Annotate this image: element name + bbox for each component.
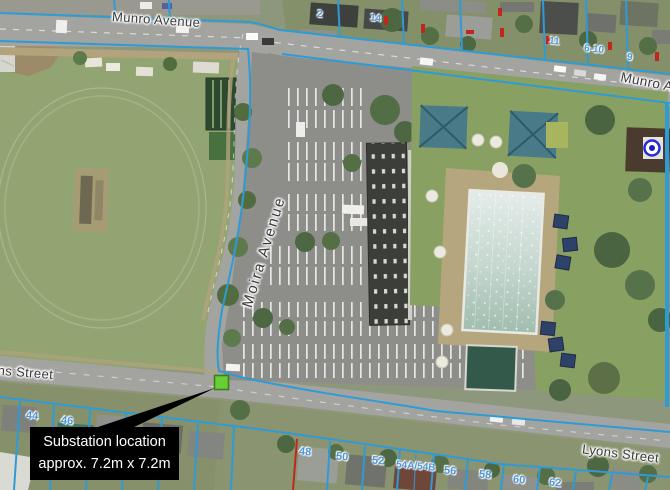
parcel-number-52: 52 — [372, 454, 385, 467]
parcel-number-11: 11 — [548, 35, 560, 47]
parcel-number-2: 2 — [316, 9, 323, 21]
park-shed — [193, 62, 219, 74]
substation-callout-line2: approx. 7.2m x 7.2m — [38, 454, 170, 476]
substation-marker — [215, 376, 229, 390]
parcel-number-62: 62 — [549, 476, 562, 489]
toddler-pool — [465, 345, 517, 391]
parcel-number-60: 60 — [513, 473, 526, 486]
cricket-pitch — [73, 167, 109, 232]
substation-callout: Substation location approx. 7.2m x 7.2m — [30, 427, 179, 480]
parcel-number-44: 44 — [26, 409, 39, 422]
parcel-number-48: 48 — [299, 445, 312, 458]
survey-point-icon — [643, 137, 663, 159]
substation-callout-line1: Substation location — [43, 432, 166, 454]
parcel-number-9: 9 — [626, 52, 633, 64]
parcel-number-58: 58 — [479, 468, 492, 481]
parcel-number-6-10: 6-10 — [583, 43, 604, 56]
parcel-number-14: 14 — [369, 12, 381, 24]
aerial-map-canvas[interactable]: Munro Avenue Munro Avenue Moira Avenue L… — [0, 0, 670, 490]
amenities-building — [366, 143, 412, 326]
parcel-number-56: 56 — [444, 464, 457, 477]
swimming-pool — [462, 190, 543, 334]
parcel-number-50: 50 — [336, 450, 349, 463]
aerial-basemap — [0, 0, 670, 490]
parcel-number-46: 46 — [61, 414, 74, 427]
